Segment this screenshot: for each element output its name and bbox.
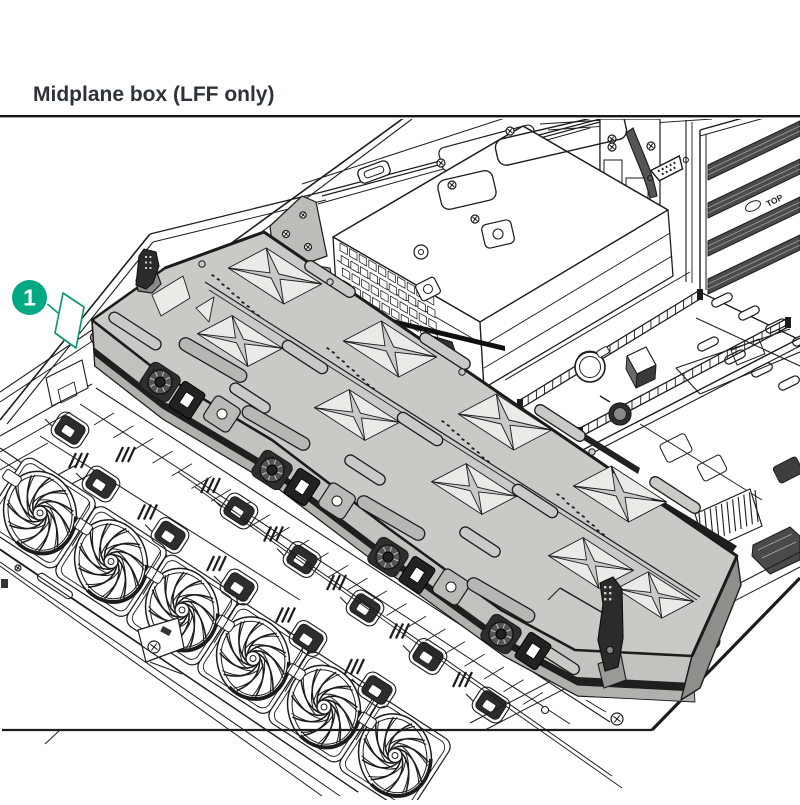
svg-text:1: 1	[23, 285, 36, 311]
svg-text:Midplane box (LFF only): Midplane box (LFF only)	[33, 83, 274, 106]
